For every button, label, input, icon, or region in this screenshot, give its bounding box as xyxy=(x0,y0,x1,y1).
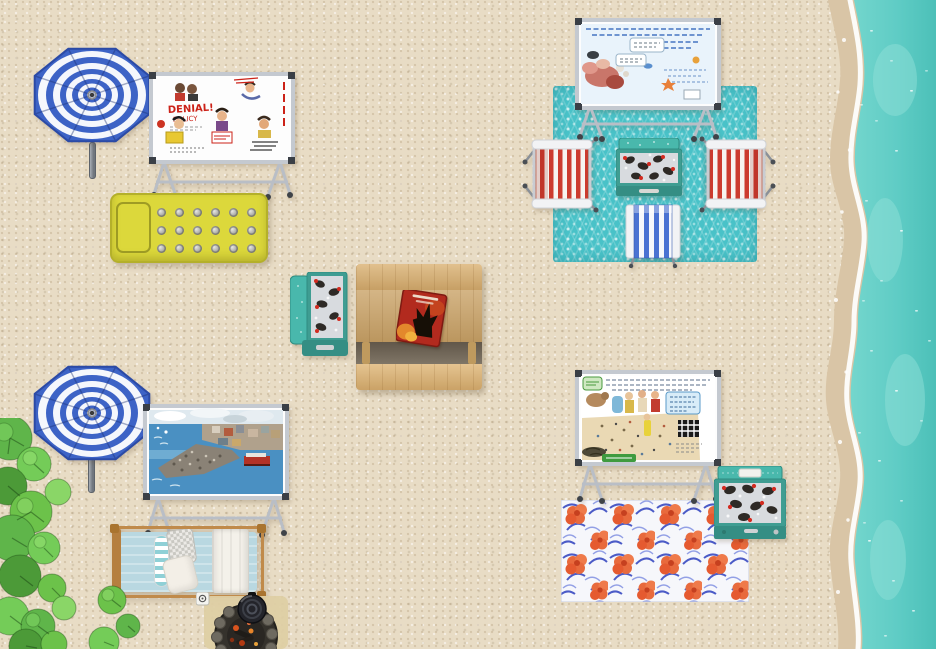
cooler-open-bottom-right[interactable] xyxy=(714,466,786,544)
beach-map: DENIAL! POLICY xyxy=(0,0,936,649)
table-bench-bottom xyxy=(356,364,482,390)
easel-legs xyxy=(154,162,290,196)
umbrella-pole xyxy=(89,142,96,179)
whiteboard-harbor-photo[interactable] xyxy=(140,398,292,538)
harbor-photo-art xyxy=(149,408,283,494)
table-bench-top xyxy=(356,264,482,290)
cooler-open-center[interactable] xyxy=(290,272,348,360)
whiteboard-denial-poster[interactable]: DENIAL! POLICY xyxy=(146,66,298,200)
chair-armrest xyxy=(532,140,592,149)
cleanup-poster-art xyxy=(581,376,715,462)
sun-lounger-yellow xyxy=(110,193,268,263)
fire-pit-tag xyxy=(196,592,209,605)
casters xyxy=(577,496,719,504)
beach-chair-red-left xyxy=(522,134,602,214)
beach-chair-red-right xyxy=(696,134,776,214)
reef-poster-art xyxy=(581,24,715,104)
beach-chair-blue xyxy=(624,202,682,268)
lounger-headrest xyxy=(116,202,151,253)
cooler-handle xyxy=(739,469,761,477)
chair-armrest xyxy=(532,199,592,208)
monstera-plants xyxy=(0,418,145,649)
cooler-open-top-right[interactable] xyxy=(616,138,682,196)
ocean-strip xyxy=(800,0,936,649)
red-book[interactable] xyxy=(396,290,448,348)
whiteboard-cleanup-poster[interactable] xyxy=(572,366,724,504)
beach-umbrella-top-left xyxy=(28,44,156,146)
easel-legs xyxy=(580,464,716,500)
fire-pit[interactable] xyxy=(196,592,292,649)
whiteboard-reef-poster[interactable] xyxy=(572,14,724,142)
